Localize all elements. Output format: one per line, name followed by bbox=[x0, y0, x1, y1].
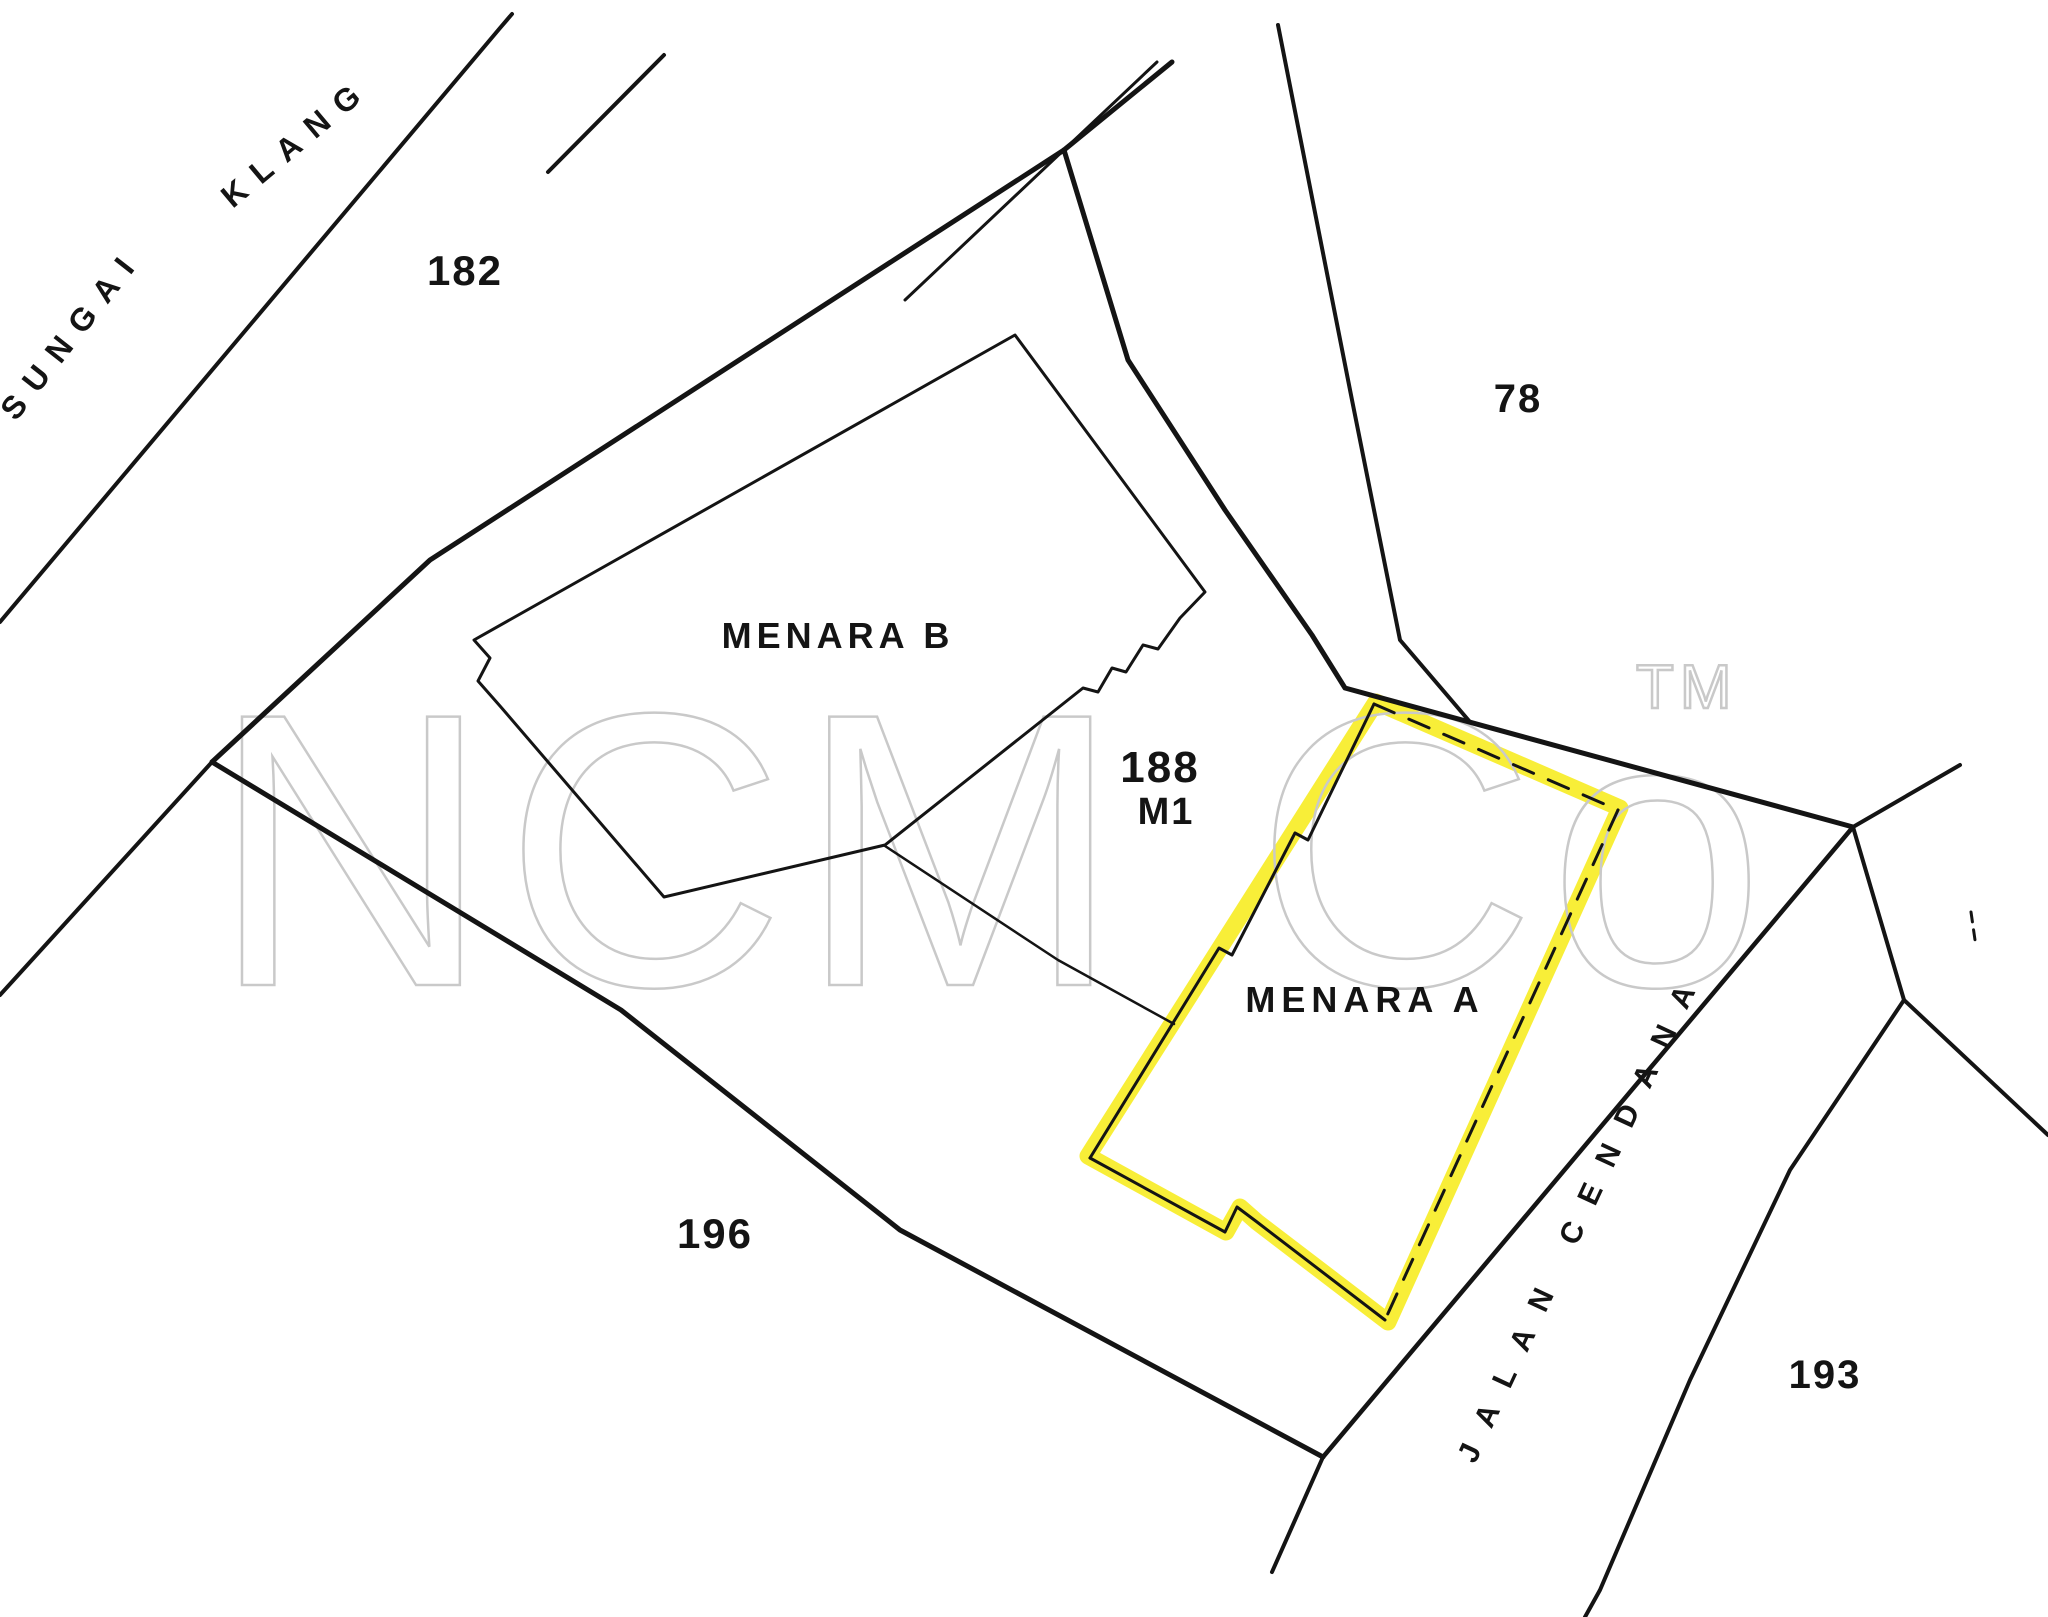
site-plan-map: NCM Co TM SUNGAIKLANG18278MENARA B188M1M… bbox=[0, 0, 2048, 1617]
survey-tick bbox=[1971, 912, 1975, 940]
watermark-text: NCM Co bbox=[210, 632, 1777, 1068]
watermark-tm-text: TM bbox=[1636, 653, 1738, 722]
lot78-boundary bbox=[1278, 25, 1470, 722]
river-bank-stroke bbox=[548, 55, 664, 172]
label-klang: KLANG bbox=[214, 69, 378, 215]
label-lot-188-m1: M1 bbox=[1138, 791, 1195, 833]
label-lot-182: 182 bbox=[427, 247, 503, 294]
junction-arm-east bbox=[1904, 1000, 2048, 1135]
junction-link bbox=[1853, 827, 1904, 1000]
river-bank-south bbox=[0, 762, 212, 995]
label-lot-78: 78 bbox=[1494, 377, 1543, 421]
parcel-boundary-top-spur bbox=[1064, 62, 1172, 150]
label-lot-188: 188 bbox=[1120, 743, 1199, 792]
road-spur bbox=[1272, 1457, 1323, 1572]
junction-arm-northeast bbox=[1853, 765, 1960, 827]
label-lot-196: 196 bbox=[677, 1210, 753, 1257]
thin-parallel-top bbox=[905, 62, 1157, 300]
label-lot-193: 193 bbox=[1789, 1353, 1862, 1397]
label-sungai: SUNGAI bbox=[0, 240, 150, 426]
site-plan-page: NCM Co TM SUNGAIKLANG18278MENARA B188M1M… bbox=[0, 0, 2048, 1617]
label-menara-b: MENARA B bbox=[722, 615, 955, 656]
watermark-layer: NCM Co TM bbox=[210, 632, 1777, 1068]
label-menara-a: MENARA A bbox=[1245, 979, 1484, 1020]
